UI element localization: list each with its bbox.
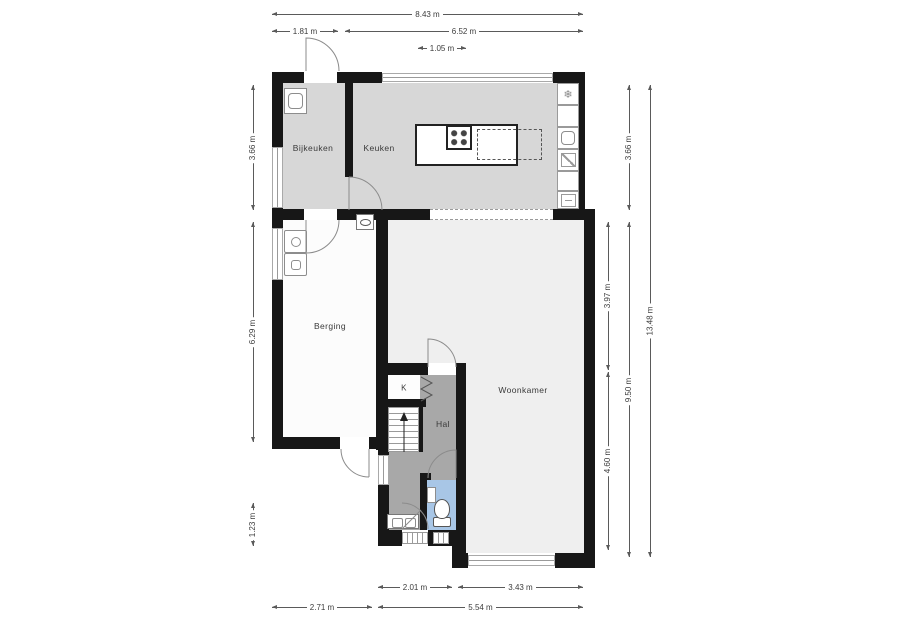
window-woonkamer-bottom [468, 555, 555, 566]
dim-label: 4.60 m [605, 446, 613, 476]
wall [272, 209, 304, 220]
dimension-bottom-left: 2.71 m [272, 602, 372, 613]
dimension-right-lower: 9.50 m [624, 222, 635, 557]
window-hal-left [378, 455, 389, 485]
dim-label: 6.52 m [449, 28, 479, 36]
wall [388, 399, 426, 407]
window-bijkeuken-left [272, 147, 283, 208]
utility-sink-icon [284, 88, 307, 114]
room-label-woonkamer: Woonkamer [498, 385, 547, 395]
dimension-top-total: 8.43 m [272, 9, 583, 20]
dimension-bottom-hall: 2.01 m [378, 582, 452, 593]
dim-label: 3.66 m [250, 132, 258, 162]
dimension-bottom-right: 5.54 m [378, 602, 583, 613]
open-passage [430, 209, 553, 220]
wall [345, 83, 353, 177]
front-door-threshold [402, 532, 428, 544]
wall [272, 72, 283, 147]
dimension-right-living-bottom: 4.60 m [603, 372, 614, 550]
dim-label: 3.66 m [626, 132, 634, 162]
dryer-icon [284, 253, 307, 276]
stairs [388, 407, 419, 452]
kitchen-sink-icon [557, 127, 579, 149]
oven-icon [557, 191, 579, 209]
wall [272, 437, 340, 449]
dim-label: 5.54 m [465, 604, 495, 612]
washing-machine-icon [284, 230, 307, 253]
dim-label: 3.97 m [605, 281, 613, 311]
dimension-bottom-living: 3.43 m [458, 582, 583, 593]
wall [452, 553, 468, 568]
counter-cabinet [557, 171, 579, 191]
dimension-top-island: 1.05 m [418, 43, 466, 54]
wall [378, 530, 402, 546]
floor-plan: ❄ Bijkeuken Keuken Berging Woonkamer Hal… [0, 0, 920, 617]
dimension-right-total: 13.48 m [645, 85, 656, 557]
dim-label: 1.81 m [290, 28, 320, 36]
dimension-left-bottom: 1.23 m [248, 503, 259, 546]
hall-cabinet-icon [387, 514, 419, 529]
dim-label: 1.23 m [250, 509, 258, 539]
meter-box-icon [356, 214, 374, 230]
snowflake-glyph: ❄ [563, 88, 572, 101]
wall [555, 553, 595, 568]
dimension-right-kitchen: 3.66 m [624, 85, 635, 210]
woonkamer-floor-upper [388, 220, 584, 363]
dim-label: 13.48 m [647, 304, 655, 339]
room-label-bijkeuken: Bijkeuken [293, 143, 333, 153]
wall [272, 280, 283, 449]
wall [456, 363, 466, 546]
wall [420, 473, 431, 480]
room-label-berging: Berging [314, 321, 346, 331]
wall [419, 407, 423, 452]
sink-basin-icon [288, 93, 303, 109]
room-label-hal: Hal [436, 419, 450, 429]
dimension-top-right: 6.52 m [345, 26, 583, 37]
wall [337, 72, 382, 83]
dimension-left-middle: 6.29 m [248, 222, 259, 442]
wall [584, 209, 595, 568]
dimension-top-left: 1.81 m [272, 26, 338, 37]
dim-label: 1.05 m [427, 45, 457, 53]
wall [337, 209, 430, 220]
toilet-bowl-icon [434, 499, 450, 519]
wall [420, 473, 427, 530]
room-label-kast: K [401, 384, 407, 393]
hand-basin-icon [427, 487, 436, 503]
window-berging-left [272, 228, 283, 280]
dim-label: 2.01 m [400, 584, 430, 592]
dimension-right-living-top: 3.97 m [603, 222, 614, 370]
dimension-left-top: 3.66 m [248, 85, 259, 210]
dim-label: 6.29 m [250, 317, 258, 347]
freezer-icon: ❄ [557, 83, 579, 105]
cooktop-icon [446, 125, 472, 150]
counter-overhang [477, 129, 542, 160]
dishwasher-icon [557, 149, 579, 171]
tall-cabinet [557, 105, 579, 127]
room-label-keuken: Keuken [363, 143, 394, 153]
dim-label: 8.43 m [412, 11, 442, 19]
dim-label: 9.50 m [626, 374, 634, 404]
wall [376, 220, 388, 450]
wall [388, 363, 428, 375]
door-bijkeuken-entry [306, 38, 339, 71]
window-keuken-top [382, 73, 553, 82]
vent-grille [433, 532, 449, 544]
dim-label: 2.71 m [307, 604, 337, 612]
door-berging-outside [341, 449, 369, 477]
dim-label: 3.43 m [505, 584, 535, 592]
